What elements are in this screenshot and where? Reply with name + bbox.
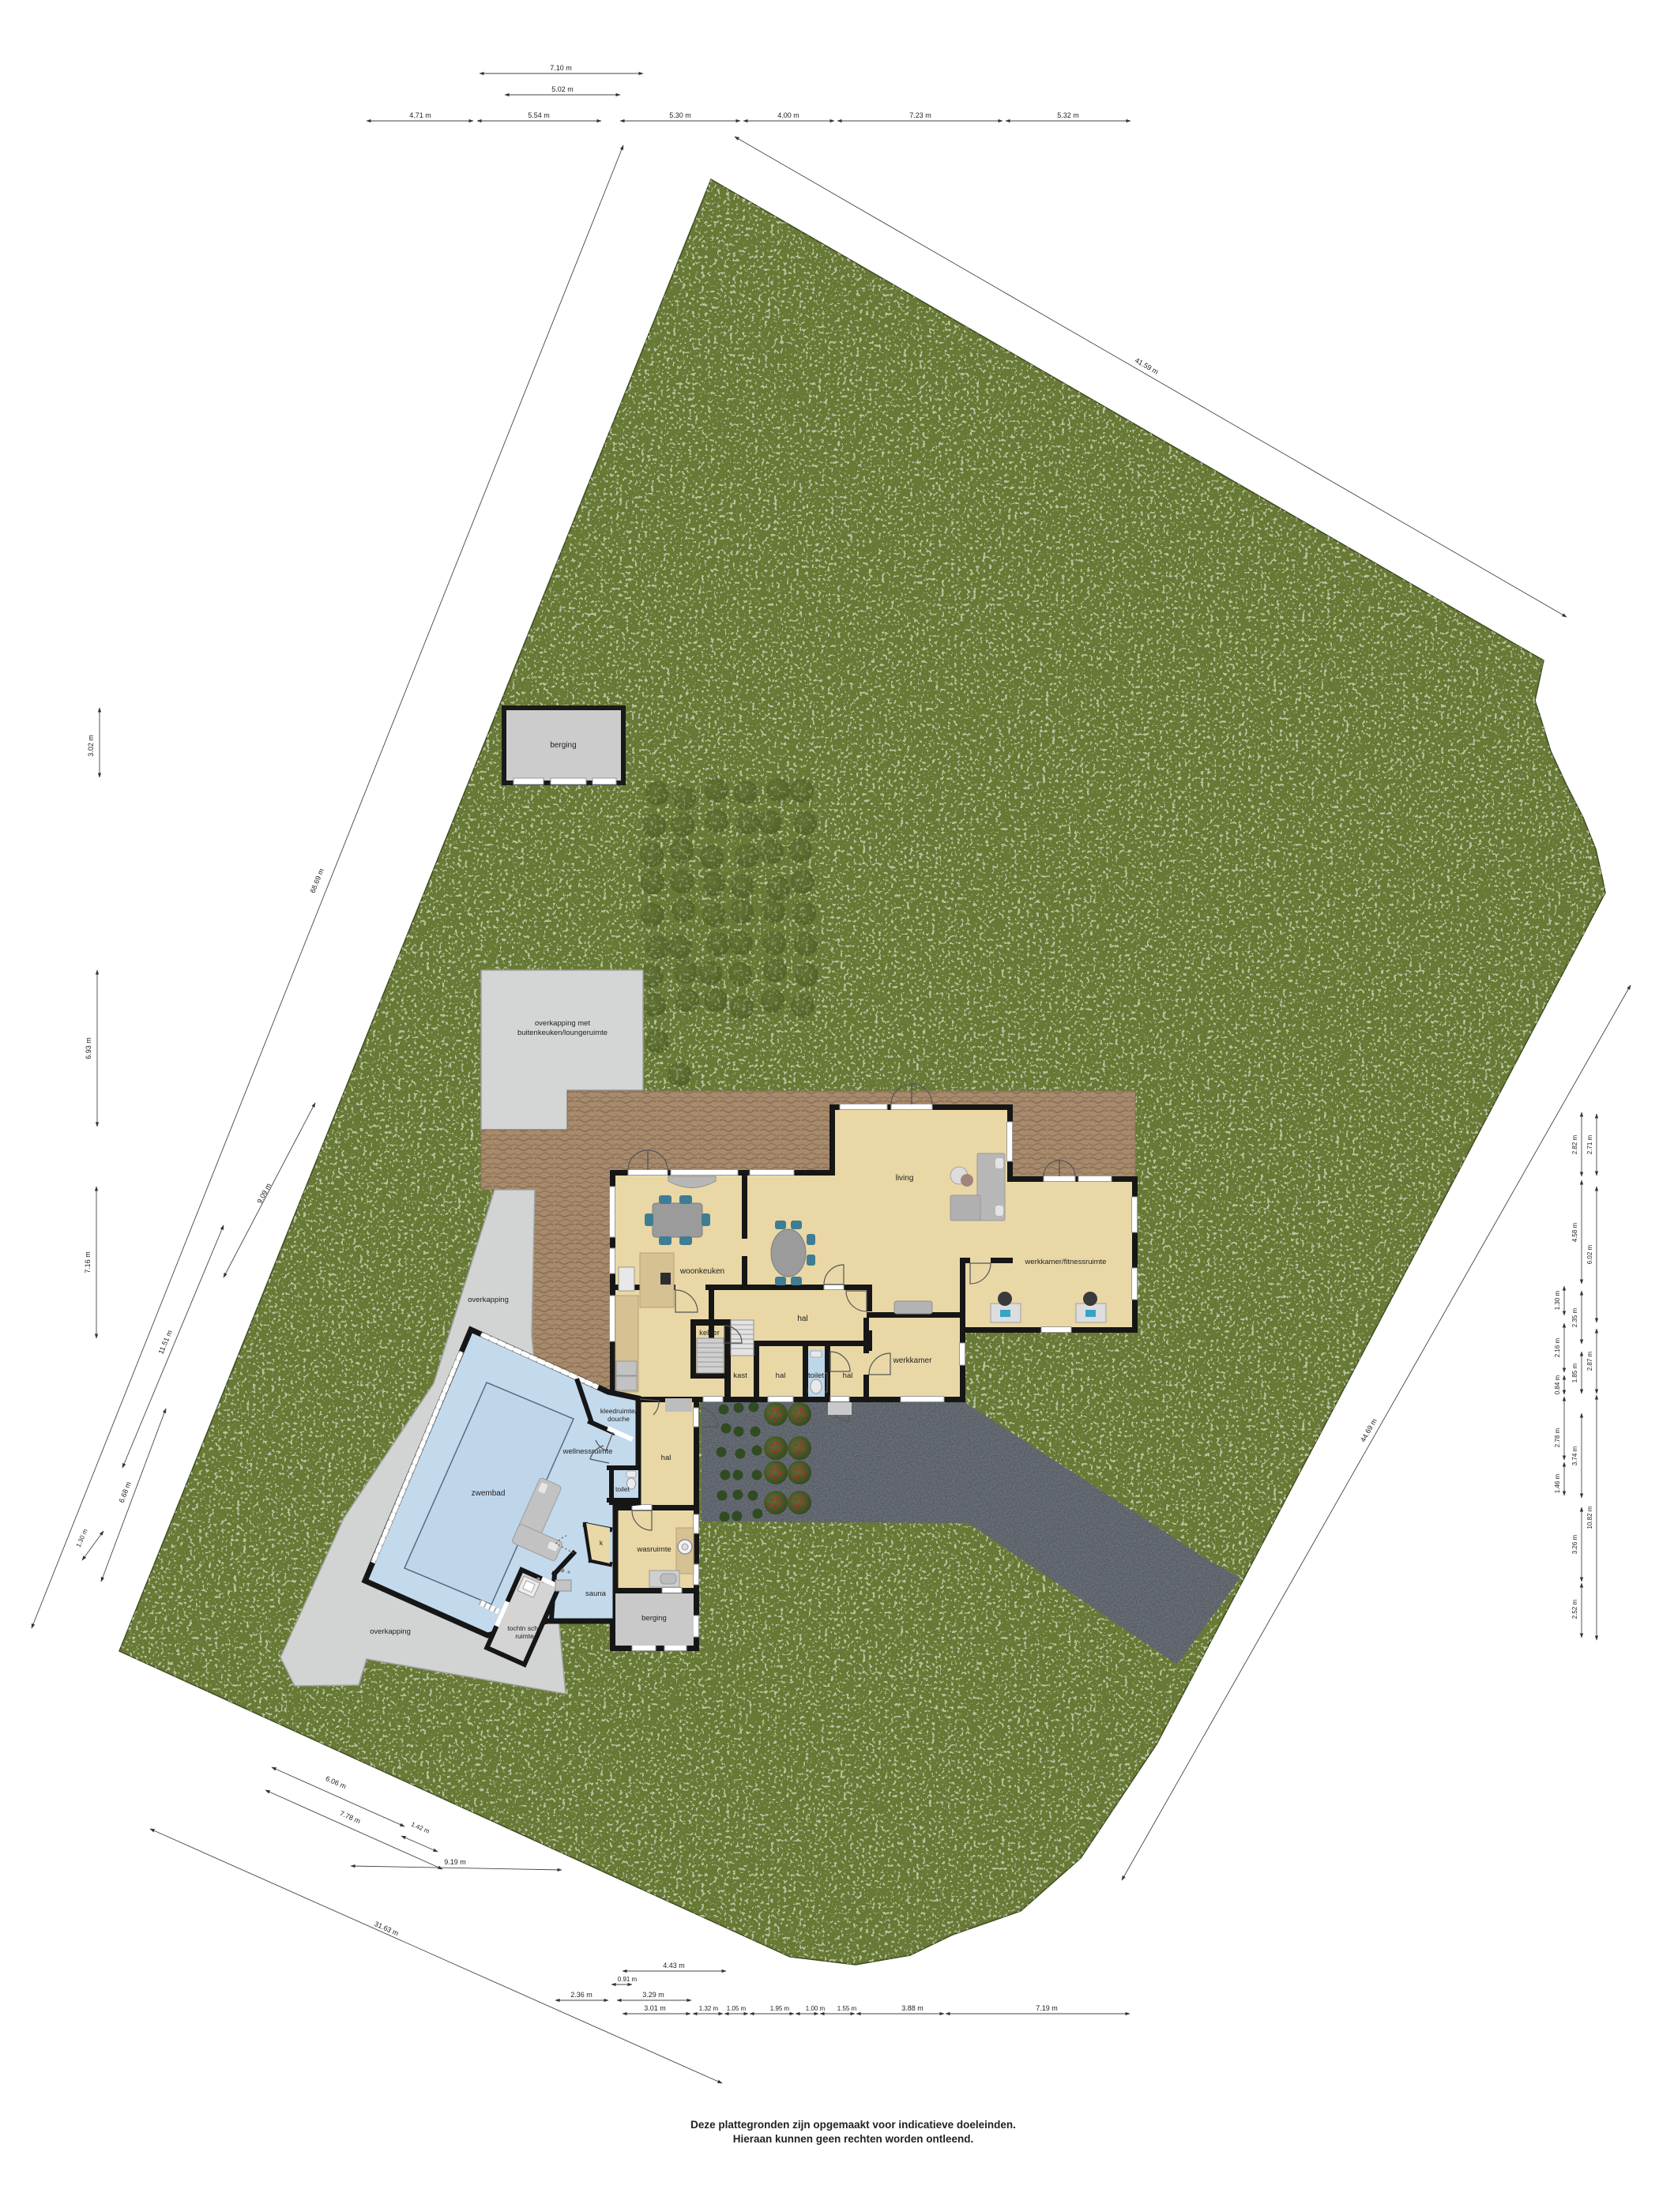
svg-text:1.05 m: 1.05 m [727, 2005, 747, 2012]
svg-text:toilet: toilet [808, 1371, 824, 1380]
svg-text:ruimte: ruimte [515, 1632, 534, 1640]
svg-text:1.55 m: 1.55 m [837, 2005, 857, 2012]
svg-text:3.88 m: 3.88 m [901, 2004, 924, 2012]
svg-text:9.19 m: 9.19 m [444, 1858, 466, 1866]
svg-text:overkapping met: overkapping met [535, 1019, 591, 1028]
svg-text:1.95 m: 1.95 m [770, 2005, 790, 2012]
svg-text:berging: berging [641, 1614, 667, 1623]
svg-text:3.29 m: 3.29 m [642, 1991, 664, 1999]
svg-text:6.02 m: 6.02 m [1586, 1244, 1593, 1264]
svg-text:0.84 m: 0.84 m [1554, 1375, 1561, 1394]
svg-text:5.02 m: 5.02 m [551, 85, 574, 93]
svg-text:0.91 m: 0.91 m [618, 1976, 638, 1983]
svg-text:1.85 m: 1.85 m [1571, 1363, 1578, 1382]
svg-text:5.54 m: 5.54 m [528, 111, 550, 119]
svg-text:1.30 m: 1.30 m [1554, 1290, 1561, 1310]
svg-text:2.35 m: 2.35 m [1571, 1307, 1578, 1327]
svg-text:10.82 m: 10.82 m [1586, 1506, 1593, 1529]
svg-text:1.46 m: 1.46 m [1554, 1473, 1561, 1493]
svg-text:tochtn scho: tochtn scho [507, 1624, 542, 1632]
svg-text:kleedruimte/: kleedruimte/ [600, 1407, 638, 1415]
svg-text:4.00 m: 4.00 m [777, 111, 799, 119]
svg-text:hal: hal [797, 1315, 807, 1323]
svg-text:Deze plattegronden zijn opgema: Deze plattegronden zijn opgemaakt voor i… [690, 2119, 1016, 2131]
svg-text:2.52 m: 2.52 m [1571, 1599, 1578, 1619]
svg-text:2.16 m: 2.16 m [1554, 1337, 1561, 1357]
svg-text:1.32 m: 1.32 m [699, 2005, 719, 2012]
svg-text:zwembad: zwembad [472, 1489, 506, 1498]
svg-text:overkapping: overkapping [370, 1627, 411, 1636]
svg-text:4.43 m: 4.43 m [663, 1962, 685, 1969]
svg-text:7.23 m: 7.23 m [909, 111, 931, 119]
svg-text:werkkamer/fitnessruimte: werkkamer/fitnessruimte [1025, 1258, 1107, 1266]
svg-text:1.00 m: 1.00 m [806, 2005, 826, 2012]
svg-text:5.30 m: 5.30 m [669, 111, 691, 119]
svg-text:3.02 m: 3.02 m [87, 735, 95, 757]
svg-text:Hieraan kunnen geen rechten wo: Hieraan kunnen geen rechten worden ontle… [733, 2133, 974, 2145]
svg-text:living: living [896, 1174, 914, 1183]
svg-text:hal: hal [661, 1454, 671, 1462]
svg-text:4.58 m: 4.58 m [1571, 1222, 1578, 1242]
svg-text:5.32 m: 5.32 m [1057, 111, 1079, 119]
svg-text:woonkeuken: woonkeuken [679, 1267, 724, 1276]
svg-text:wellnessruimte: wellnessruimte [562, 1447, 613, 1456]
svg-text:2.78 m: 2.78 m [1554, 1428, 1561, 1447]
svg-text:overkapping: overkapping [468, 1296, 509, 1304]
svg-text:7.10 m: 7.10 m [550, 64, 572, 72]
svg-text:kast: kast [733, 1371, 747, 1380]
svg-text:hal: hal [776, 1371, 786, 1380]
svg-text:6.93 m: 6.93 m [85, 1037, 92, 1059]
svg-text:3.01 m: 3.01 m [644, 2004, 666, 2012]
svg-text:4.71 m: 4.71 m [409, 111, 431, 119]
svg-text:7.19 m: 7.19 m [1036, 2004, 1058, 2012]
svg-text:2.87 m: 2.87 m [1586, 1351, 1593, 1371]
svg-text:2.71 m: 2.71 m [1586, 1134, 1593, 1154]
svg-text:wasruimte: wasruimte [636, 1545, 671, 1554]
svg-text:2.82 m: 2.82 m [1571, 1134, 1578, 1154]
svg-text:3.26 m: 3.26 m [1571, 1534, 1578, 1554]
svg-text:sauna: sauna [585, 1589, 607, 1598]
svg-text:kelder: kelder [699, 1329, 720, 1337]
svg-text:werkkamer: werkkamer [893, 1356, 933, 1365]
svg-text:hal: hal [843, 1371, 853, 1380]
svg-text:3.74 m: 3.74 m [1571, 1446, 1578, 1465]
svg-text:toilet: toilet [615, 1485, 630, 1493]
svg-text:2.36 m: 2.36 m [570, 1991, 592, 1999]
svg-text:7.16 m: 7.16 m [84, 1251, 92, 1273]
svg-text:douche: douche [608, 1415, 630, 1423]
svg-text:berging: berging [550, 741, 576, 750]
svg-text:buitenkeuken/loungeruimte: buitenkeuken/loungeruimte [517, 1029, 608, 1037]
